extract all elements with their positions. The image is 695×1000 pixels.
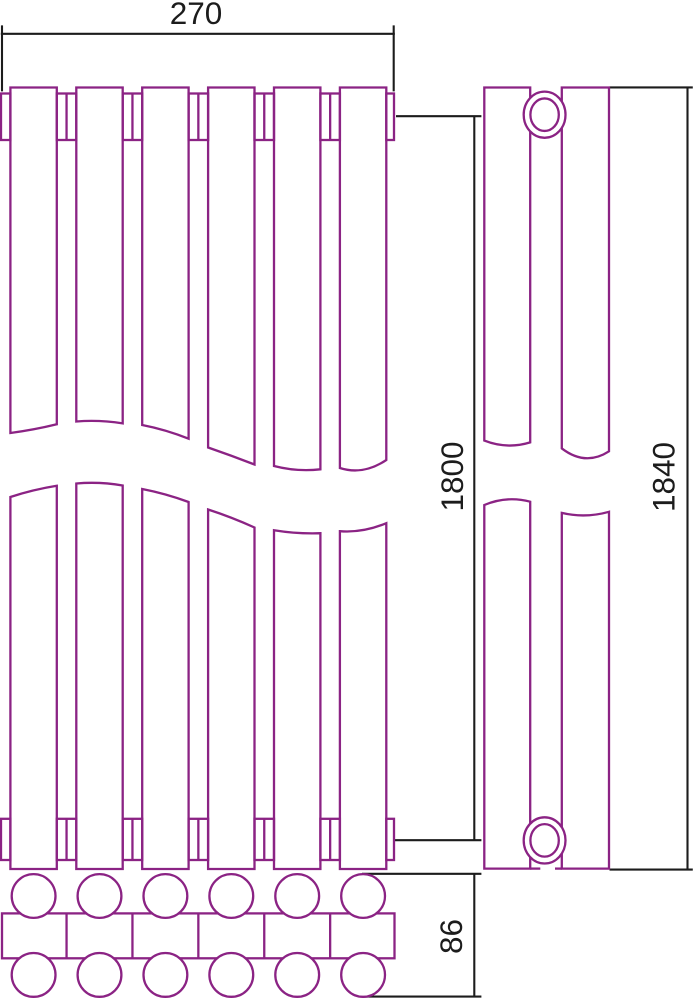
svg-text:86: 86	[433, 919, 469, 954]
svg-text:1800: 1800	[434, 441, 470, 511]
svg-text:270: 270	[170, 0, 223, 31]
svg-text:1840: 1840	[646, 442, 682, 512]
